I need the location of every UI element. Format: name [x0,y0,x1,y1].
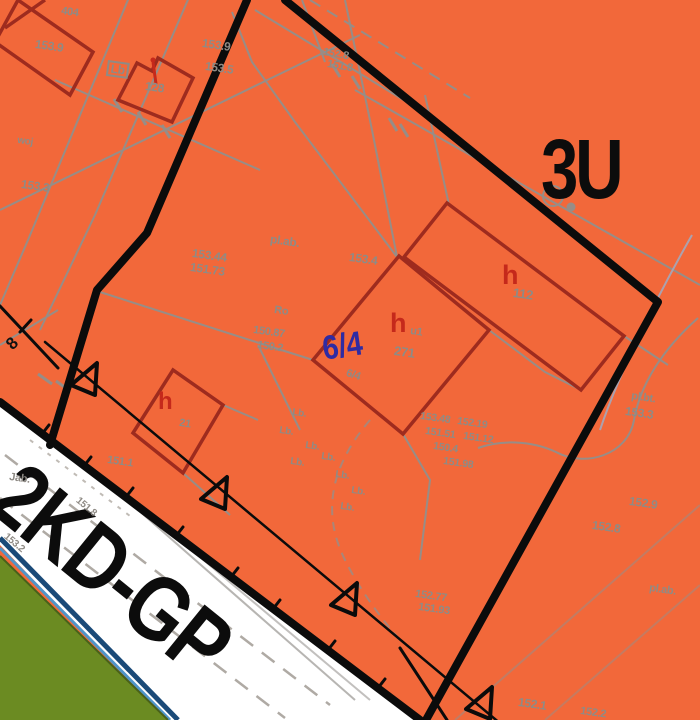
road-label-2kd-gp: 2KD-GP [0,452,244,690]
landuse-label: pl.ab. [269,233,300,249]
elevation-label: 152.19 [457,416,488,431]
labels-layer: 3U 2KD-GP 6/4 8 404153.9153.9153.5Lb128w… [0,0,700,720]
zone-label-3u: 3U [541,132,621,208]
elevation-label: 151.73 [189,261,225,278]
building-height-label: h [158,390,172,414]
zoning-plan-map: 3U 2KD-GP 6/4 8 404153.9153.9153.5Lb128w… [0,0,700,720]
elevation-label: 150.4 [433,441,459,455]
building-number-label: 271 [393,344,415,360]
elevation-label: 153.9 [34,38,64,54]
building-height-label: h [390,310,406,337]
elevation-label: 153.5 [204,60,234,76]
landuse-label: Lb. [305,441,320,453]
elevation-label: 150.2 [256,340,283,355]
building-number-label: 112 [512,286,534,302]
elevation-label: 153.3 [20,178,50,194]
elevation-label: 151.12 [463,431,494,446]
elevation-label: 153.9 [201,37,231,53]
elevation-label: 151.51 [425,426,456,441]
landuse-label: Lb [106,60,130,79]
landuse-label: Lb. [321,452,336,464]
elevation-label: 404 [60,6,79,19]
map-label: woj [17,136,34,148]
landuse-label: Lb. [335,470,350,482]
parcel-number-gray: 6/4 [345,368,362,383]
landuse-label: pl.bt. [630,391,656,405]
landuse-label: Lb. [279,426,294,438]
elevation-label: 151.1 [106,455,133,470]
elevation-label: 152.8 [591,519,621,535]
landuse-label: Lb. [292,408,307,420]
elevation-label: 153.4 [348,251,378,267]
elevation-label: 151.93 [417,602,450,617]
landuse-label: Ro [273,305,288,318]
landuse-label: pl.ab. [648,583,676,598]
elevation-label: 152.2 [579,706,606,720]
building-number-label: u1 [409,326,423,339]
landuse-label: Lb. [351,486,366,498]
elevation-label: 153.3 [624,405,654,421]
building-number-label: 128 [144,80,165,95]
parcel-label-6-4: 6/4 [320,324,365,368]
elevation-label: 152.1 [517,696,547,712]
section-label-8: 8 [2,333,23,354]
elevation-label: 153.48 [420,411,451,426]
elevation-label: 151.8 [326,59,354,74]
elevation-label: 151.98 [443,456,474,471]
elevation-label: 152.9 [628,495,658,511]
building-number-label: 21 [178,418,191,431]
landuse-label: Lb. [290,457,305,469]
landuse-label: Lb. [340,502,355,514]
